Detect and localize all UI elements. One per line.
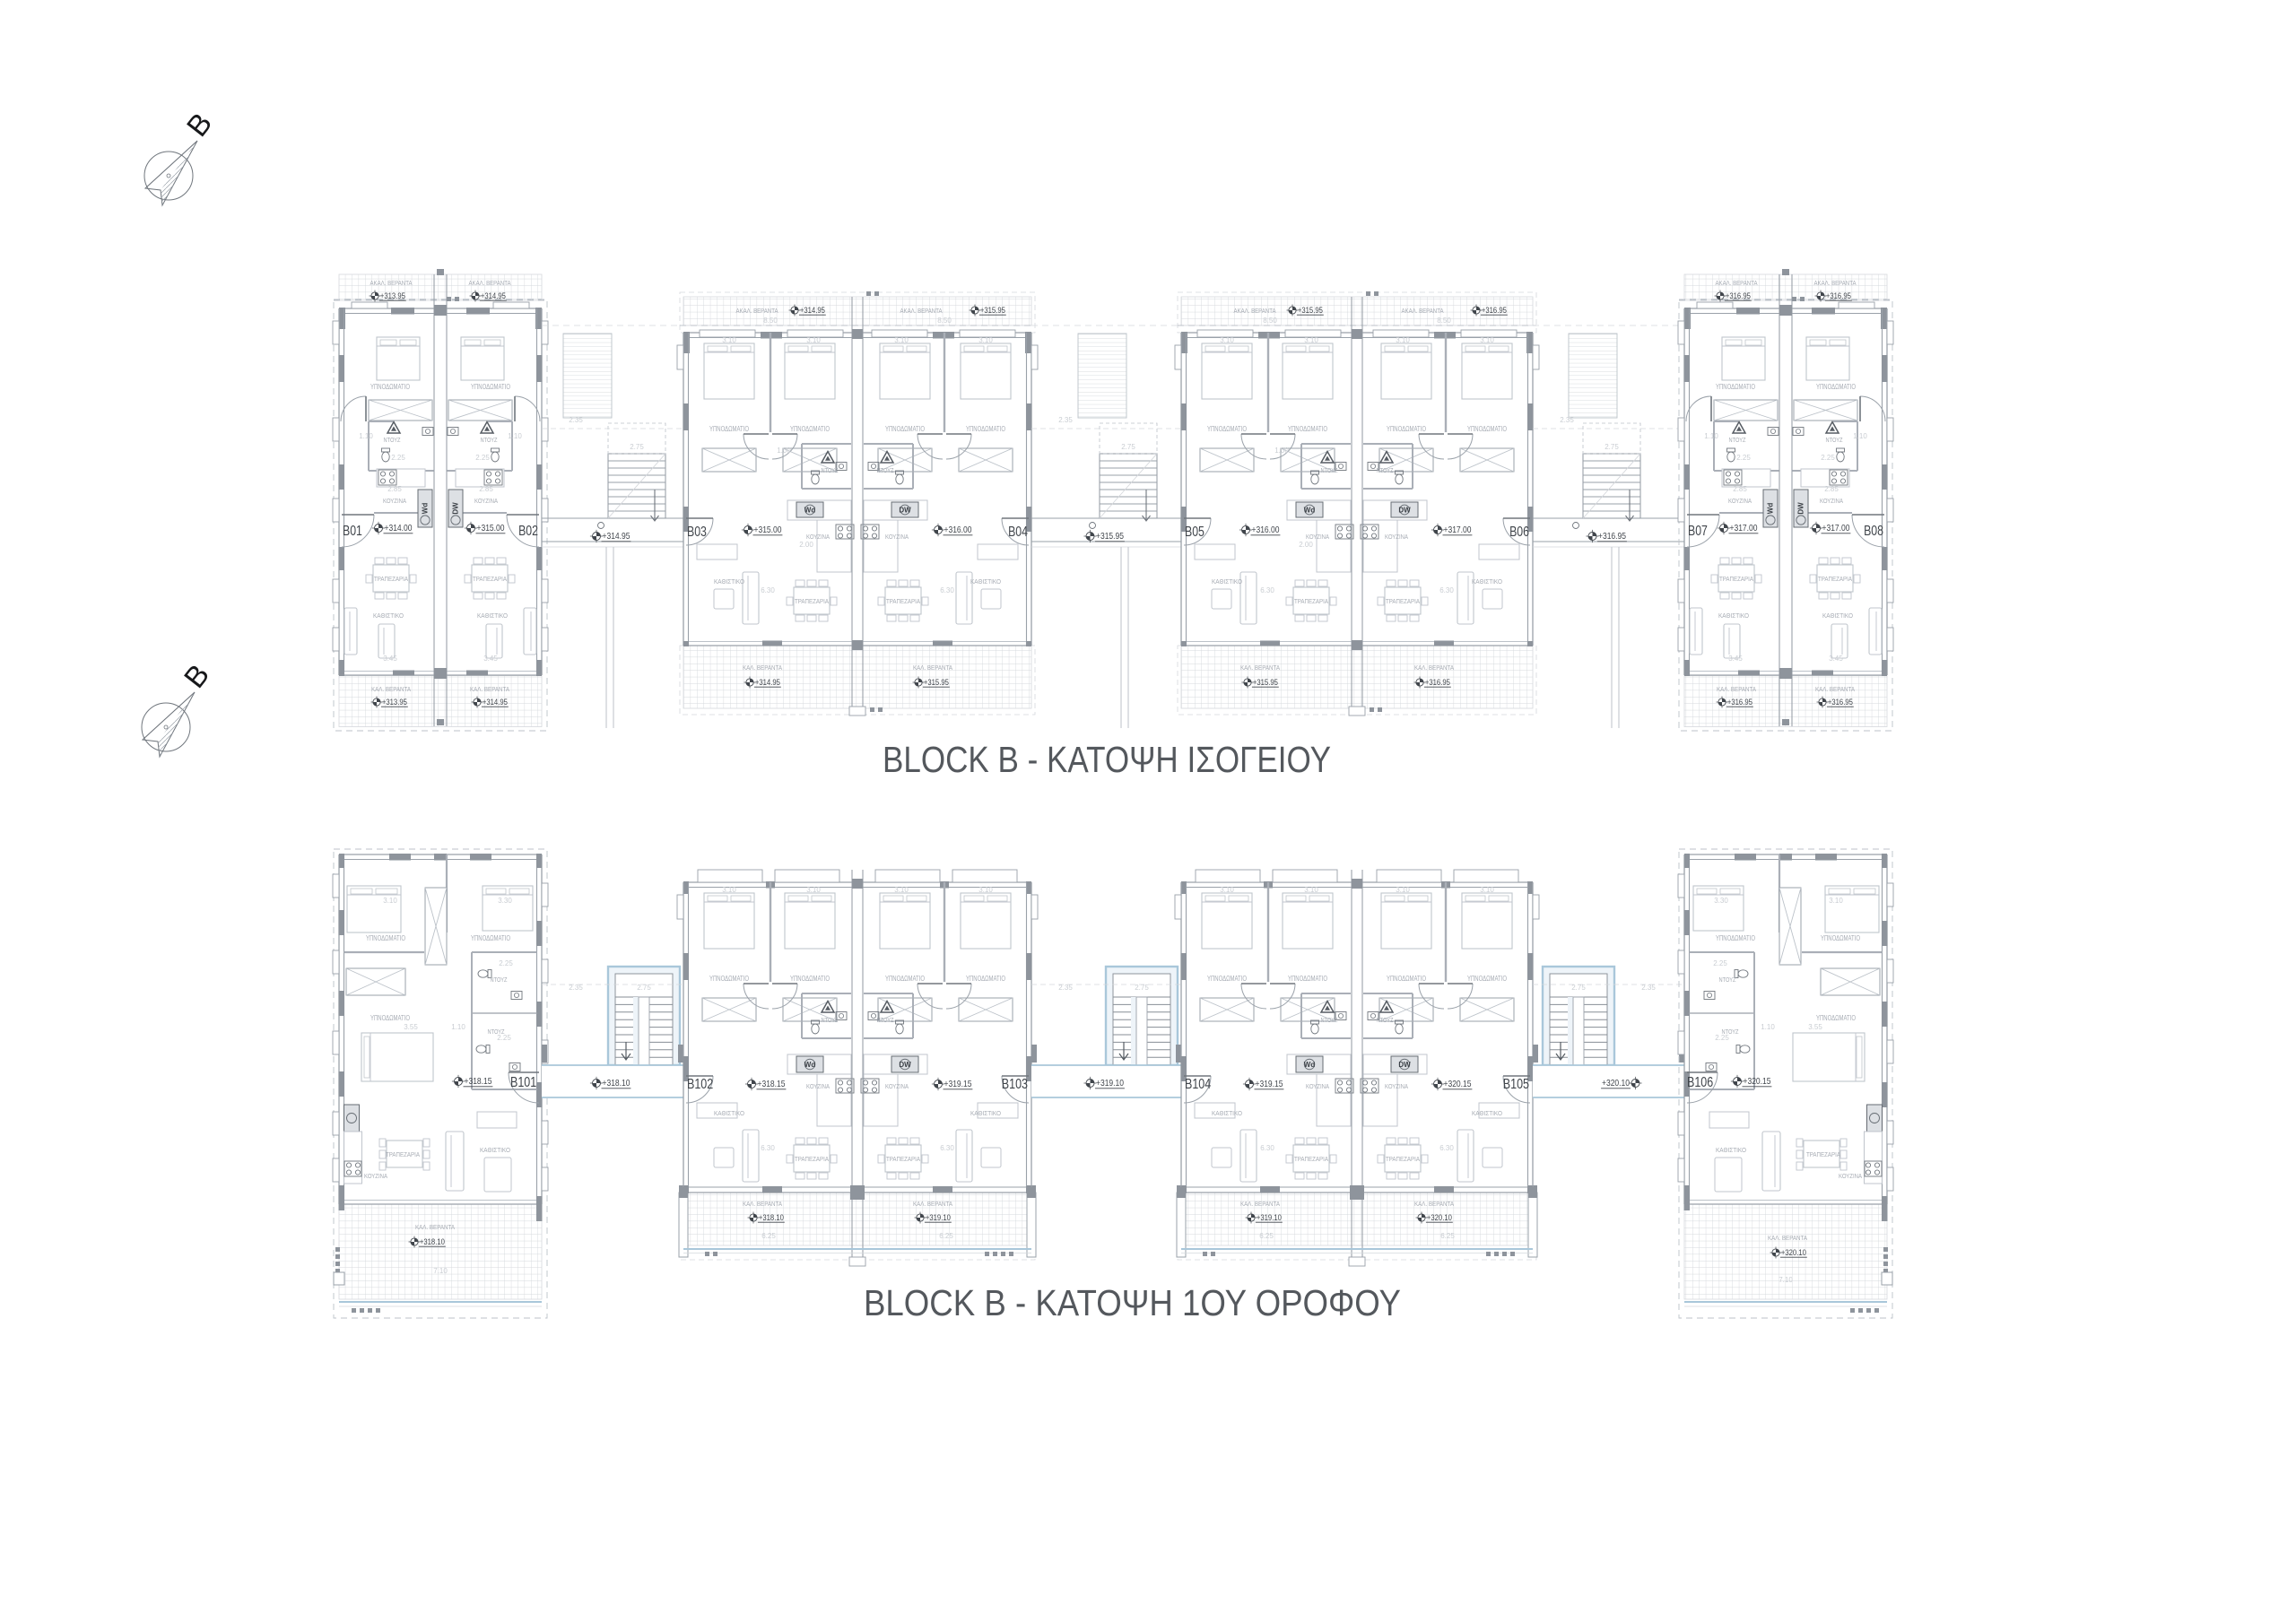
svg-text:2.75: 2.75 xyxy=(630,443,644,451)
svg-text:6.30: 6.30 xyxy=(940,1144,954,1152)
svg-text:+316.95: +316.95 xyxy=(1828,698,1853,707)
svg-text:ΝΤΟΥΖ: ΝΤΟΥΖ xyxy=(491,976,508,984)
svg-text:ΚΟΥΖΙΝΑ: ΚΟΥΖΙΝΑ xyxy=(806,1082,830,1090)
svg-text:+315.95: +315.95 xyxy=(1298,306,1323,316)
svg-text:Wd: Wd xyxy=(804,1061,816,1069)
svg-text:ΚΑΛ. ΒΕΡΑΝΤΑ: ΚΑΛ. ΒΕΡΑΝΤΑ xyxy=(371,685,411,693)
svg-text:+317.00: +317.00 xyxy=(1730,523,1758,533)
svg-text:+314.95: +314.95 xyxy=(755,678,780,688)
svg-text:6.30: 6.30 xyxy=(1260,1144,1274,1152)
svg-text:1.10: 1.10 xyxy=(1853,432,1867,440)
svg-text:ΑΚΑΛ. ΒΕΡΑΝΤΑ: ΑΚΑΛ. ΒΕΡΑΝΤΑ xyxy=(1814,279,1857,287)
svg-text:ΥΠΝΟΔΩΜΑΤΙΟ: ΥΠΝΟΔΩΜΑΤΙΟ xyxy=(966,975,1005,983)
svg-text:ΚΟΥΖΙΝΑ: ΚΟΥΖΙΝΑ xyxy=(1306,1082,1329,1090)
svg-text:+320.15: +320.15 xyxy=(1444,1079,1472,1089)
svg-text:ΥΠΝΟΔΩΜΑΤΙΟ: ΥΠΝΟΔΩΜΑΤΙΟ xyxy=(885,425,925,433)
svg-text:3.10: 3.10 xyxy=(1220,336,1234,344)
svg-text:B04: B04 xyxy=(1008,525,1028,540)
svg-text:3.10: 3.10 xyxy=(1829,897,1843,905)
svg-text:3.10: 3.10 xyxy=(1304,336,1318,344)
svg-text:+317.00: +317.00 xyxy=(1444,525,1472,535)
svg-text:ΚΑΛ. ΒΕΡΑΝΤΑ: ΚΑΛ. ΒΕΡΑΝΤΑ xyxy=(1414,1200,1454,1208)
svg-text:+319.15: +319.15 xyxy=(1256,1079,1283,1089)
svg-text:6.30: 6.30 xyxy=(761,1144,775,1152)
svg-text:ΥΠΝΟΔΩΜΑΤΙΟ: ΥΠΝΟΔΩΜΑΤΙΟ xyxy=(1716,934,1755,942)
svg-text:ΚΑΛ. ΒΕΡΑΝΤΑ: ΚΑΛ. ΒΕΡΑΝΤΑ xyxy=(415,1223,455,1231)
svg-text:+318.10: +318.10 xyxy=(759,1213,784,1223)
svg-text:ΚΑΘΙΣΤΙΚΟ: ΚΑΘΙΣΤΙΚΟ xyxy=(477,612,508,620)
svg-text:+320.10: +320.10 xyxy=(1602,1078,1630,1089)
svg-text:ΥΠΝΟΔΩΜΑΤΙΟ: ΥΠΝΟΔΩΜΑΤΙΟ xyxy=(370,383,410,391)
svg-text:ΥΠΝΟΔΩΜΑΤΙΟ: ΥΠΝΟΔΩΜΑΤΙΟ xyxy=(790,425,830,433)
svg-text:2.75: 2.75 xyxy=(1605,443,1619,451)
svg-text:2.35: 2.35 xyxy=(1058,984,1073,992)
svg-text:B101: B101 xyxy=(510,1075,536,1090)
svg-text:ΚΑΘΙΣΤΙΚΟ: ΚΑΘΙΣΤΙΚΟ xyxy=(1716,1146,1746,1154)
svg-text:B03: B03 xyxy=(687,525,707,540)
svg-text:ΤΡΑΠΕΖΑΡΙΑ: ΤΡΑΠΕΖΑΡΙΑ xyxy=(795,597,829,605)
svg-text:+315.95: +315.95 xyxy=(980,306,1005,316)
svg-text:3.10: 3.10 xyxy=(1480,336,1494,344)
svg-text:ΝΤΟΥΖ: ΝΤΟΥΖ xyxy=(877,466,894,474)
svg-text:+316.00: +316.00 xyxy=(1252,525,1280,535)
svg-text:ΝΤΟΥΖ: ΝΤΟΥΖ xyxy=(822,466,839,474)
svg-text:3.10: 3.10 xyxy=(978,336,993,344)
svg-text:2.85: 2.85 xyxy=(387,485,402,493)
svg-text:ΤΡΑΠΕΖΑΡΙΑ: ΤΡΑΠΕΖΑΡΙΑ xyxy=(1294,597,1328,605)
svg-text:8.50: 8.50 xyxy=(763,317,778,325)
svg-text:ΚΑΘΙΣΤΙΚΟ: ΚΑΘΙΣΤΙΚΟ xyxy=(1718,612,1749,620)
svg-text:ΚΑΘΙΣΤΙΚΟ: ΚΑΘΙΣΤΙΚΟ xyxy=(1212,1109,1242,1117)
svg-text:3.45: 3.45 xyxy=(1829,655,1843,663)
svg-text:3.55: 3.55 xyxy=(1808,1023,1822,1031)
svg-text:Wd: Wd xyxy=(1304,1061,1316,1069)
svg-text:ΤΡΑΠΕΖΑΡΙΑ: ΤΡΑΠΕΖΑΡΙΑ xyxy=(473,575,507,583)
svg-text:6.25: 6.25 xyxy=(761,1232,776,1240)
svg-text:ΤΡΑΠΕΖΑΡΙΑ: ΤΡΑΠΕΖΑΡΙΑ xyxy=(1386,1155,1420,1163)
svg-text:+314.00: +314.00 xyxy=(385,523,413,533)
svg-text:2.25: 2.25 xyxy=(497,1034,511,1042)
svg-text:+316.95: +316.95 xyxy=(1727,698,1752,707)
svg-text:+316.95: +316.95 xyxy=(1726,291,1751,301)
svg-text:ΝΤΟΥΖ: ΝΤΟΥΖ xyxy=(1719,976,1736,984)
svg-text:6.30: 6.30 xyxy=(1439,586,1454,594)
svg-text:ΚΑΛ. ΒΕΡΑΝΤΑ: ΚΑΛ. ΒΕΡΑΝΤΑ xyxy=(913,664,952,672)
svg-text:ΥΠΝΟΔΩΜΑΤΙΟ: ΥΠΝΟΔΩΜΑΤΙΟ xyxy=(1467,425,1507,433)
svg-text:ΚΑΘΙΣΤΙΚΟ: ΚΑΘΙΣΤΙΚΟ xyxy=(1472,1109,1502,1117)
svg-text:1.00: 1.00 xyxy=(777,447,791,455)
svg-text:+316.00: +316.00 xyxy=(944,525,972,535)
svg-text:6.30: 6.30 xyxy=(1439,1144,1454,1152)
svg-text:ΝΤΟΥΖ: ΝΤΟΥΖ xyxy=(481,436,498,444)
svg-text:8.50: 8.50 xyxy=(1437,317,1451,325)
svg-text:ΥΠΝΟΔΩΜΑΤΙΟ: ΥΠΝΟΔΩΜΑΤΙΟ xyxy=(709,425,749,433)
svg-text:6.25: 6.25 xyxy=(1259,1232,1274,1240)
svg-text:+318.15: +318.15 xyxy=(758,1079,786,1089)
svg-text:ΚΑΛ. ΒΕΡΑΝΤΑ: ΚΑΛ. ΒΕΡΑΝΤΑ xyxy=(1768,1234,1807,1242)
svg-text:2.25: 2.25 xyxy=(1713,959,1727,967)
svg-text:3.10: 3.10 xyxy=(806,336,821,344)
svg-text:ΥΠΝΟΔΩΜΑΤΙΟ: ΥΠΝΟΔΩΜΑΤΙΟ xyxy=(1288,975,1327,983)
svg-text:+314.95: +314.95 xyxy=(603,531,631,542)
svg-text:+315.95: +315.95 xyxy=(1253,678,1278,688)
svg-text:6.30: 6.30 xyxy=(940,586,954,594)
svg-text:3.30: 3.30 xyxy=(1714,897,1728,905)
svg-text:8.50: 8.50 xyxy=(1263,317,1277,325)
svg-text:1.10: 1.10 xyxy=(508,432,522,440)
svg-text:1.10: 1.10 xyxy=(1761,1023,1775,1031)
svg-text:ΤΡΑΠΕΖΑΡΙΑ: ΤΡΑΠΕΖΑΡΙΑ xyxy=(1818,575,1852,583)
svg-text:+316.95: +316.95 xyxy=(1482,306,1507,316)
svg-text:B105: B105 xyxy=(1503,1077,1529,1092)
svg-text:ΚΑΛ. ΒΕΡΑΝΤΑ: ΚΑΛ. ΒΕΡΑΝΤΑ xyxy=(743,1200,782,1208)
svg-text:+315.00: +315.00 xyxy=(754,525,782,535)
svg-text:2.25: 2.25 xyxy=(1715,1034,1729,1042)
svg-text:BLOCK B - ΚΑΤΟΨΗ ΙΣΟΓΕΙΟΥ: BLOCK B - ΚΑΤΟΨΗ ΙΣΟΓΕΙΟΥ xyxy=(883,739,1331,780)
svg-text:ΥΠΝΟΔΩΜΑΤΙΟ: ΥΠΝΟΔΩΜΑΤΙΟ xyxy=(471,383,510,391)
svg-text:+316.95: +316.95 xyxy=(1826,291,1851,301)
svg-text:3.10: 3.10 xyxy=(722,336,736,344)
svg-text:3.10: 3.10 xyxy=(383,897,397,905)
svg-text:ΤΡΑΠΕΖΑΡΙΑ: ΤΡΑΠΕΖΑΡΙΑ xyxy=(795,1155,829,1163)
svg-text:+320.10: +320.10 xyxy=(1427,1213,1452,1223)
svg-text:ΚΟΥΖΙΝΑ: ΚΟΥΖΙΝΑ xyxy=(885,1082,909,1090)
svg-text:+315.95: +315.95 xyxy=(1096,531,1124,542)
svg-text:ΥΠΝΟΔΩΜΑΤΙΟ: ΥΠΝΟΔΩΜΑΤΙΟ xyxy=(1821,934,1860,942)
svg-text:ΥΠΝΟΔΩΜΑΤΙΟ: ΥΠΝΟΔΩΜΑΤΙΟ xyxy=(1387,975,1426,983)
svg-text:ΚΟΥΖΙΝΑ: ΚΟΥΖΙΝΑ xyxy=(383,497,406,505)
svg-text:ΚΟΥΖΙΝΑ: ΚΟΥΖΙΝΑ xyxy=(1820,497,1843,505)
svg-text:B08: B08 xyxy=(1864,524,1883,539)
svg-text:+315.00: +315.00 xyxy=(477,523,505,533)
svg-text:ΚΑΘΙΣΤΙΚΟ: ΚΑΘΙΣΤΙΚΟ xyxy=(480,1146,510,1154)
svg-text:ΥΠΝΟΔΩΜΑΤΙΟ: ΥΠΝΟΔΩΜΑΤΙΟ xyxy=(790,975,830,983)
svg-text:ΚΟΥΖΙΝΑ: ΚΟΥΖΙΝΑ xyxy=(1728,497,1752,505)
svg-text:1.10: 1.10 xyxy=(1704,432,1718,440)
svg-text:ΚΑΘΙΣΤΙΚΟ: ΚΑΘΙΣΤΙΚΟ xyxy=(970,577,1001,585)
svg-text:BLOCK B - ΚΑΤΟΨΗ 1ΟΥ ΟΡΟΦΟΥ: BLOCK B - ΚΑΤΟΨΗ 1ΟΥ ΟΡΟΦΟΥ xyxy=(864,1282,1401,1323)
svg-text:B06: B06 xyxy=(1509,525,1529,540)
svg-text:ΑΚΑΛ. ΒΕΡΑΝΤΑ: ΑΚΑΛ. ΒΕΡΑΝΤΑ xyxy=(1234,307,1276,315)
svg-text:+317.00: +317.00 xyxy=(1822,523,1850,533)
svg-text:2.00: 2.00 xyxy=(799,541,813,549)
svg-text:6.25: 6.25 xyxy=(1440,1232,1455,1240)
svg-text:ΚΑΛ. ΒΕΡΑΝΤΑ: ΚΑΛ. ΒΕΡΑΝΤΑ xyxy=(470,685,509,693)
svg-text:1.10: 1.10 xyxy=(359,432,373,440)
svg-text:ΑΚΑΛ. ΒΕΡΑΝΤΑ: ΑΚΑΛ. ΒΕΡΑΝΤΑ xyxy=(900,307,943,315)
svg-text:ΥΠΝΟΔΩΜΑΤΙΟ: ΥΠΝΟΔΩΜΑΤΙΟ xyxy=(1716,383,1755,391)
svg-text:2.35: 2.35 xyxy=(1058,416,1073,424)
svg-text:ΚΟΥΖΙΝΑ: ΚΟΥΖΙΝΑ xyxy=(364,1172,387,1180)
svg-text:ΑΚΑΛ. ΒΕΡΑΝΤΑ: ΑΚΑΛ. ΒΕΡΑΝΤΑ xyxy=(1716,279,1758,287)
svg-text:B02: B02 xyxy=(518,524,538,539)
svg-text:B104: B104 xyxy=(1185,1077,1211,1092)
svg-text:7.10: 7.10 xyxy=(433,1267,448,1275)
svg-text:ΤΡΑΠΕΖΑΡΙΑ: ΤΡΑΠΕΖΑΡΙΑ xyxy=(1386,597,1420,605)
svg-text:2.75: 2.75 xyxy=(1135,984,1149,992)
svg-text:DW: DW xyxy=(1398,1061,1411,1069)
svg-text:B07: B07 xyxy=(1688,524,1708,539)
svg-text:3.10: 3.10 xyxy=(1396,336,1410,344)
svg-text:2.85: 2.85 xyxy=(1824,485,1839,493)
svg-text:2.85: 2.85 xyxy=(1733,485,1747,493)
svg-text:3.30: 3.30 xyxy=(498,897,512,905)
svg-text:3.10: 3.10 xyxy=(1220,886,1234,894)
svg-text:ΚΑΛ. ΒΕΡΑΝΤΑ: ΚΑΛ. ΒΕΡΑΝΤΑ xyxy=(1717,685,1756,693)
svg-text:ΑΚΑΛ. ΒΕΡΑΝΤΑ: ΑΚΑΛ. ΒΕΡΑΝΤΑ xyxy=(469,279,511,287)
svg-text:2.25: 2.25 xyxy=(475,454,490,462)
svg-text:ΚΑΘΙΣΤΙΚΟ: ΚΑΘΙΣΤΙΚΟ xyxy=(1472,577,1502,585)
svg-text:Wd: Wd xyxy=(422,503,430,515)
svg-text:B05: B05 xyxy=(1185,525,1205,540)
svg-text:2.35: 2.35 xyxy=(569,416,583,424)
svg-text:6.30: 6.30 xyxy=(1260,586,1274,594)
svg-text:ΝΤΟΥΖ: ΝΤΟΥΖ xyxy=(384,436,401,444)
svg-text:DW: DW xyxy=(452,502,460,515)
svg-text:ΥΠΝΟΔΩΜΑΤΙΟ: ΥΠΝΟΔΩΜΑΤΙΟ xyxy=(370,1014,410,1022)
svg-text:ΚΟΥΖΙΝΑ: ΚΟΥΖΙΝΑ xyxy=(1839,1172,1862,1180)
svg-text:ΝΤΟΥΖ: ΝΤΟΥΖ xyxy=(1729,436,1746,444)
svg-text:2.25: 2.25 xyxy=(499,959,513,967)
svg-text:1.10: 1.10 xyxy=(451,1023,465,1031)
svg-text:+314.95: +314.95 xyxy=(483,698,508,707)
svg-text:ΚΑΘΙΣΤΙΚΟ: ΚΑΘΙΣΤΙΚΟ xyxy=(970,1109,1001,1117)
svg-text:ΥΠΝΟΔΩΜΑΤΙΟ: ΥΠΝΟΔΩΜΑΤΙΟ xyxy=(1816,383,1856,391)
svg-text:ΑΚΑΛ. ΒΕΡΑΝΤΑ: ΑΚΑΛ. ΒΕΡΑΝΤΑ xyxy=(370,279,413,287)
svg-text:B103: B103 xyxy=(1002,1077,1028,1092)
svg-text:ΥΠΝΟΔΩΜΑΤΙΟ: ΥΠΝΟΔΩΜΑΤΙΟ xyxy=(885,975,925,983)
svg-text:ΚΟΥΖΙΝΑ: ΚΟΥΖΙΝΑ xyxy=(1306,533,1329,541)
svg-text:3.10: 3.10 xyxy=(1396,886,1410,894)
svg-text:3.10: 3.10 xyxy=(978,886,993,894)
svg-text:ΥΠΝΟΔΩΜΑΤΙΟ: ΥΠΝΟΔΩΜΑΤΙΟ xyxy=(709,975,749,983)
svg-text:ΚΑΛ. ΒΕΡΑΝΤΑ: ΚΑΛ. ΒΕΡΑΝΤΑ xyxy=(1240,664,1280,672)
svg-text:2.85: 2.85 xyxy=(479,485,493,493)
svg-text:3.10: 3.10 xyxy=(722,886,736,894)
svg-text:ΚΟΥΖΙΝΑ: ΚΟΥΖΙΝΑ xyxy=(474,497,498,505)
svg-text:ΥΠΝΟΔΩΜΑΤΙΟ: ΥΠΝΟΔΩΜΑΤΙΟ xyxy=(471,934,510,942)
svg-text:3.55: 3.55 xyxy=(404,1023,418,1031)
svg-text:DW: DW xyxy=(899,1061,911,1069)
svg-text:ΚΑΛ. ΒΕΡΑΝΤΑ: ΚΑΛ. ΒΕΡΑΝΤΑ xyxy=(1815,685,1855,693)
svg-text:ΚΟΥΖΙΝΑ: ΚΟΥΖΙΝΑ xyxy=(806,533,830,541)
svg-text:ΤΡΑΠΕΖΑΡΙΑ: ΤΡΑΠΕΖΑΡΙΑ xyxy=(1719,575,1753,583)
svg-text:+319.10: +319.10 xyxy=(1257,1213,1282,1223)
svg-text:+316.95: +316.95 xyxy=(1598,531,1626,542)
svg-text:ΑΚΑΛ. ΒΕΡΑΝΤΑ: ΑΚΑΛ. ΒΕΡΑΝΤΑ xyxy=(1402,307,1444,315)
svg-text:3.10: 3.10 xyxy=(894,336,909,344)
svg-text:ΚΑΘΙΣΤΙΚΟ: ΚΑΘΙΣΤΙΚΟ xyxy=(1212,577,1242,585)
svg-text:ΤΡΑΠΕΖΑΡΙΑ: ΤΡΑΠΕΖΑΡΙΑ xyxy=(886,1155,920,1163)
svg-text:ΚΑΛ. ΒΕΡΑΝΤΑ: ΚΑΛ. ΒΕΡΑΝΤΑ xyxy=(743,664,782,672)
svg-text:+318.15: +318.15 xyxy=(465,1076,492,1087)
svg-text:+319.10: +319.10 xyxy=(1096,1078,1124,1089)
svg-text:ΥΠΝΟΔΩΜΑΤΙΟ: ΥΠΝΟΔΩΜΑΤΙΟ xyxy=(966,425,1005,433)
svg-text:+314.95: +314.95 xyxy=(481,291,506,301)
svg-text:ΚΑΘΙΣΤΙΚΟ: ΚΑΘΙΣΤΙΚΟ xyxy=(714,577,744,585)
svg-text:ΚΑΘΙΣΤΙΚΟ: ΚΑΘΙΣΤΙΚΟ xyxy=(1822,612,1853,620)
svg-text:8.50: 8.50 xyxy=(937,317,952,325)
svg-text:3.45: 3.45 xyxy=(383,655,397,663)
svg-text:ΤΡΑΠΕΖΑΡΙΑ: ΤΡΑΠΕΖΑΡΙΑ xyxy=(1806,1150,1840,1158)
svg-text:3.10: 3.10 xyxy=(806,886,821,894)
svg-text:3.45: 3.45 xyxy=(483,655,498,663)
svg-text:+316.95: +316.95 xyxy=(1425,678,1450,688)
svg-text:+318.10: +318.10 xyxy=(420,1237,445,1247)
svg-text:ΚΑΘΙΣΤΙΚΟ: ΚΑΘΙΣΤΙΚΟ xyxy=(714,1109,744,1117)
svg-text:ΥΠΝΟΔΩΜΑΤΙΟ: ΥΠΝΟΔΩΜΑΤΙΟ xyxy=(1816,1014,1856,1022)
svg-text:3.10: 3.10 xyxy=(894,886,909,894)
svg-text:+319.10: +319.10 xyxy=(926,1213,951,1223)
svg-text:1.00: 1.00 xyxy=(1274,447,1289,455)
svg-text:3.10: 3.10 xyxy=(1304,886,1318,894)
svg-text:Wd: Wd xyxy=(804,507,816,515)
svg-text:ΥΠΝΟΔΩΜΑΤΙΟ: ΥΠΝΟΔΩΜΑΤΙΟ xyxy=(366,934,405,942)
svg-text:ΚΑΛ. ΒΕΡΑΝΤΑ: ΚΑΛ. ΒΕΡΑΝΤΑ xyxy=(1414,664,1454,672)
svg-text:ΚΟΥΖΙΝΑ: ΚΟΥΖΙΝΑ xyxy=(1385,1082,1408,1090)
svg-text:ΝΤΟΥΖ: ΝΤΟΥΖ xyxy=(1321,466,1338,474)
svg-text:ΝΤΟΥΖ: ΝΤΟΥΖ xyxy=(1321,1016,1338,1024)
svg-text:2.75: 2.75 xyxy=(1571,984,1586,992)
svg-text:ΝΤΟΥΖ: ΝΤΟΥΖ xyxy=(1826,436,1843,444)
svg-text:+315.95: +315.95 xyxy=(924,678,949,688)
svg-text:ΤΡΑΠΕΖΑΡΙΑ: ΤΡΑΠΕΖΑΡΙΑ xyxy=(386,1150,420,1158)
svg-text:ΝΤΟΥΖ: ΝΤΟΥΖ xyxy=(1377,1016,1394,1024)
svg-text:ΤΡΑΠΕΖΑΡΙΑ: ΤΡΑΠΕΖΑΡΙΑ xyxy=(374,575,408,583)
svg-text:ΝΤΟΥΖ: ΝΤΟΥΖ xyxy=(822,1016,839,1024)
svg-text:B106: B106 xyxy=(1687,1075,1713,1090)
svg-text:2.25: 2.25 xyxy=(391,454,405,462)
svg-text:B102: B102 xyxy=(687,1077,713,1092)
svg-text:2.75: 2.75 xyxy=(1121,443,1135,451)
svg-text:ΤΡΑΠΕΖΑΡΙΑ: ΤΡΑΠΕΖΑΡΙΑ xyxy=(1294,1155,1328,1163)
svg-text:ΚΟΥΖΙΝΑ: ΚΟΥΖΙΝΑ xyxy=(1385,533,1408,541)
svg-text:3.10: 3.10 xyxy=(1480,886,1494,894)
svg-text:ΥΠΝΟΔΩΜΑΤΙΟ: ΥΠΝΟΔΩΜΑΤΙΟ xyxy=(1207,975,1247,983)
svg-text:2.35: 2.35 xyxy=(1560,416,1574,424)
svg-text:DW: DW xyxy=(899,507,911,515)
svg-text:ΝΤΟΥΖ: ΝΤΟΥΖ xyxy=(877,1016,894,1024)
svg-text:2.75: 2.75 xyxy=(637,984,651,992)
svg-text:+319.15: +319.15 xyxy=(944,1079,972,1089)
svg-text:DW: DW xyxy=(1797,502,1805,515)
svg-text:ΑΚΑΛ. ΒΕΡΑΝΤΑ: ΑΚΑΛ. ΒΕΡΑΝΤΑ xyxy=(736,307,778,315)
svg-text:ΥΠΝΟΔΩΜΑΤΙΟ: ΥΠΝΟΔΩΜΑΤΙΟ xyxy=(1288,425,1327,433)
svg-text:2.35: 2.35 xyxy=(1641,984,1656,992)
svg-text:2.00: 2.00 xyxy=(1299,541,1313,549)
svg-text:+318.10: +318.10 xyxy=(603,1078,631,1089)
svg-text:6.25: 6.25 xyxy=(939,1232,953,1240)
svg-text:+320.15: +320.15 xyxy=(1744,1076,1771,1087)
svg-text:2.35: 2.35 xyxy=(569,984,583,992)
svg-text:ΚΑΘΙΣΤΙΚΟ: ΚΑΘΙΣΤΙΚΟ xyxy=(373,612,404,620)
svg-text:B01: B01 xyxy=(343,524,362,539)
svg-text:ΥΠΝΟΔΩΜΑΤΙΟ: ΥΠΝΟΔΩΜΑΤΙΟ xyxy=(1467,975,1507,983)
svg-text:6.30: 6.30 xyxy=(761,586,775,594)
svg-text:2.25: 2.25 xyxy=(1821,454,1835,462)
svg-text:+320.10: +320.10 xyxy=(1781,1248,1806,1258)
svg-text:ΚΟΥΖΙΝΑ: ΚΟΥΖΙΝΑ xyxy=(885,533,909,541)
svg-text:+314.95: +314.95 xyxy=(800,306,825,316)
svg-text:Wd: Wd xyxy=(1304,507,1316,515)
svg-text:+313.95: +313.95 xyxy=(382,698,407,707)
svg-text:ΥΠΝΟΔΩΜΑΤΙΟ: ΥΠΝΟΔΩΜΑΤΙΟ xyxy=(1387,425,1426,433)
svg-text:Wd: Wd xyxy=(1767,503,1775,515)
svg-text:7.10: 7.10 xyxy=(1779,1276,1793,1284)
svg-text:ΝΤΟΥΖ: ΝΤΟΥΖ xyxy=(1377,466,1394,474)
svg-text:DW: DW xyxy=(1398,507,1411,515)
svg-text:ΥΠΝΟΔΩΜΑΤΙΟ: ΥΠΝΟΔΩΜΑΤΙΟ xyxy=(1207,425,1247,433)
svg-text:ΚΑΛ. ΒΕΡΑΝΤΑ: ΚΑΛ. ΒΕΡΑΝΤΑ xyxy=(1240,1200,1280,1208)
svg-text:2.25: 2.25 xyxy=(1736,454,1751,462)
svg-text:ΤΡΑΠΕΖΑΡΙΑ: ΤΡΑΠΕΖΑΡΙΑ xyxy=(886,597,920,605)
svg-text:ΚΑΛ. ΒΕΡΑΝΤΑ: ΚΑΛ. ΒΕΡΑΝΤΑ xyxy=(913,1200,952,1208)
svg-text:+313.95: +313.95 xyxy=(380,291,405,301)
svg-text:3.45: 3.45 xyxy=(1728,655,1743,663)
